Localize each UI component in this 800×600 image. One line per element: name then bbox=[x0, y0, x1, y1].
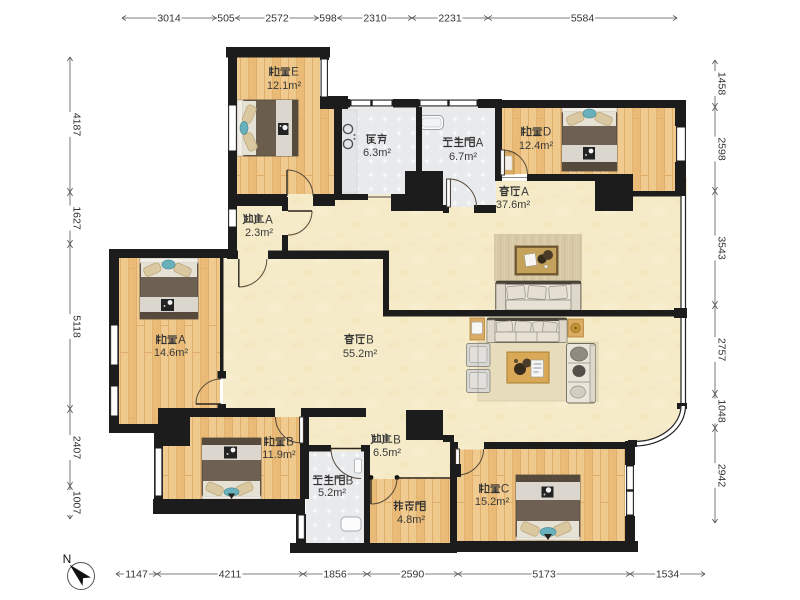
svg-text:12.4m²: 12.4m² bbox=[519, 140, 554, 152]
svg-text:1856: 1856 bbox=[323, 569, 347, 581]
svg-text:A: A bbox=[178, 334, 186, 346]
svg-text:5584: 5584 bbox=[571, 13, 595, 25]
svg-text:6.5m²: 6.5m² bbox=[373, 447, 401, 459]
svg-text:4187: 4187 bbox=[71, 113, 83, 137]
svg-text:12.1m²: 12.1m² bbox=[267, 80, 302, 92]
svg-text:505: 505 bbox=[217, 13, 235, 25]
svg-text:5.2m²: 5.2m² bbox=[318, 487, 346, 499]
svg-text:1458: 1458 bbox=[716, 72, 728, 96]
svg-text:11.9m²: 11.9m² bbox=[262, 449, 296, 461]
svg-text:2.3m²: 2.3m² bbox=[245, 227, 273, 239]
svg-text:1627: 1627 bbox=[71, 206, 83, 230]
svg-text:1007: 1007 bbox=[71, 491, 83, 515]
svg-text:D: D bbox=[543, 126, 551, 138]
svg-text:1048: 1048 bbox=[716, 399, 728, 423]
svg-text:5173: 5173 bbox=[532, 569, 556, 581]
svg-text:2757: 2757 bbox=[716, 338, 728, 362]
svg-text:3543: 3543 bbox=[716, 236, 728, 260]
svg-text:B: B bbox=[286, 436, 294, 448]
svg-text:5118: 5118 bbox=[71, 315, 83, 338]
svg-text:A: A bbox=[521, 186, 529, 198]
svg-text:1534: 1534 bbox=[656, 569, 680, 581]
svg-text:A: A bbox=[476, 137, 484, 149]
svg-text:4.8m²: 4.8m² bbox=[397, 514, 425, 526]
svg-text:1147: 1147 bbox=[125, 569, 148, 581]
svg-text:2310: 2310 bbox=[363, 13, 387, 25]
svg-text:B: B bbox=[366, 334, 374, 346]
svg-text:2942: 2942 bbox=[716, 464, 728, 488]
svg-text:B: B bbox=[346, 475, 354, 487]
svg-text:B: B bbox=[393, 434, 401, 446]
svg-text:E: E bbox=[291, 66, 299, 78]
svg-text:3014: 3014 bbox=[157, 13, 181, 25]
svg-text:2598: 2598 bbox=[716, 137, 728, 161]
svg-text:598: 598 bbox=[319, 13, 337, 25]
svg-text:A: A bbox=[265, 214, 273, 226]
svg-text:C: C bbox=[501, 483, 509, 495]
svg-text:2590: 2590 bbox=[401, 569, 425, 581]
svg-text:55.2m²: 55.2m² bbox=[343, 348, 378, 360]
svg-text:2407: 2407 bbox=[71, 436, 83, 460]
svg-text:15.2m²: 15.2m² bbox=[475, 496, 510, 508]
svg-text:N: N bbox=[63, 552, 72, 566]
svg-text:6.7m²: 6.7m² bbox=[449, 151, 477, 163]
svg-text:2572: 2572 bbox=[265, 13, 289, 25]
svg-text:2231: 2231 bbox=[438, 13, 462, 25]
svg-text:37.6m²: 37.6m² bbox=[496, 199, 531, 211]
svg-text:4211: 4211 bbox=[219, 569, 242, 581]
svg-text:6.3m²: 6.3m² bbox=[363, 147, 391, 159]
svg-text:14.6m²: 14.6m² bbox=[154, 347, 189, 359]
